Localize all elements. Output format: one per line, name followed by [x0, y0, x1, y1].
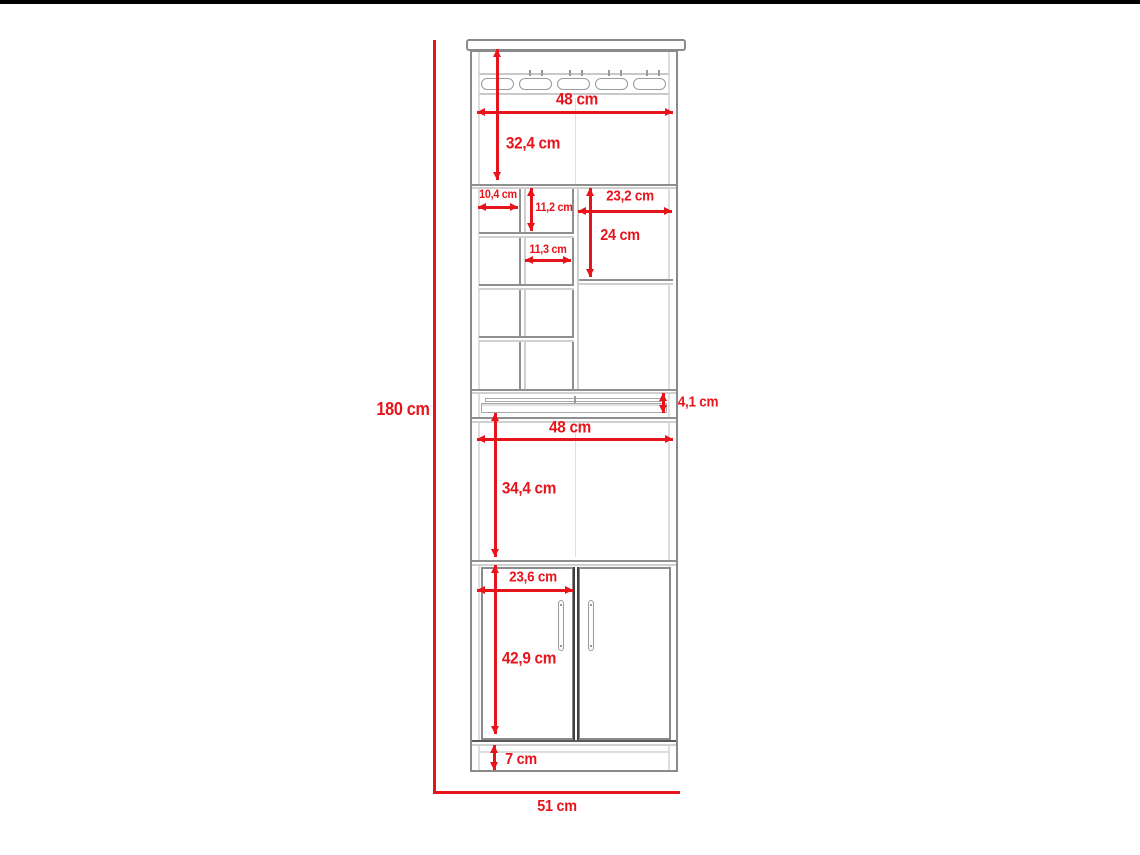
dimension-label-overall-height: 180 cm [376, 400, 429, 418]
arrowhead-down-icon [491, 726, 499, 734]
arrowhead-left-icon [578, 207, 586, 215]
dimension-label-middle-section-width: 48 cm [549, 419, 591, 436]
dimension-label-overall-width: 51 cm [537, 799, 576, 815]
arrowhead-up-icon [491, 413, 499, 421]
dimension-label-top-section-height: 32,4 cm [506, 135, 560, 152]
arrowhead-right-icon [665, 435, 673, 443]
arrowhead-right-icon [664, 207, 672, 215]
dimension-label-kick-height: 7 cm [505, 752, 537, 768]
dimension-label-door-height: 42,9 cm [502, 650, 556, 667]
arrowhead-up-icon [586, 188, 594, 196]
arrowhead-right-icon [510, 203, 518, 211]
dimension-label-ledge-height: 4,1 cm [678, 395, 718, 410]
dimension-label-right-column-height: 24 cm [600, 228, 639, 244]
dimension-label-middle-column-height: 11,2 cm [535, 201, 572, 213]
arrowhead-down-icon [491, 549, 499, 557]
arrowhead-up-icon [491, 565, 499, 573]
dimension-label-right-column-width: 23,2 cm [606, 189, 654, 204]
arrowhead-down-icon [586, 269, 594, 277]
arrowhead-right-icon [565, 586, 573, 594]
arrowhead-left-icon [477, 435, 485, 443]
arrowhead-left-icon [477, 586, 485, 594]
arrowhead-up-icon [490, 745, 498, 753]
arrowhead-left-icon [478, 203, 486, 211]
arrowhead-up-icon [493, 49, 501, 57]
arrowhead-down-icon [659, 405, 667, 413]
dimension-label-middle-column-width: 11,3 cm [529, 243, 566, 255]
dimension-label-left-column-width: 10,4 cm [479, 188, 517, 200]
diagram-canvas: 48 cm32,4 cm10,4 cm11,2 cm23,2 cm24 cm11… [0, 0, 1140, 855]
arrowhead-right-icon [563, 256, 571, 264]
dimension-label-glassrack-section-width: 48 cm [556, 91, 598, 108]
arrowhead-down-icon [493, 172, 501, 180]
dimension-annotations: 48 cm32,4 cm10,4 cm11,2 cm23,2 cm24 cm11… [0, 0, 1140, 855]
arrowhead-down-icon [527, 223, 535, 231]
arrowhead-up-icon [527, 188, 535, 196]
arrowhead-down-icon [490, 762, 498, 770]
arrowhead-right-icon [665, 108, 673, 116]
arrowhead-up-icon [659, 393, 667, 401]
arrowhead-left-icon [525, 256, 533, 264]
dimension-label-door-width: 23,6 cm [509, 570, 557, 585]
arrowhead-left-icon [477, 108, 485, 116]
dimension-label-middle-section-height: 34,4 cm [502, 480, 556, 497]
